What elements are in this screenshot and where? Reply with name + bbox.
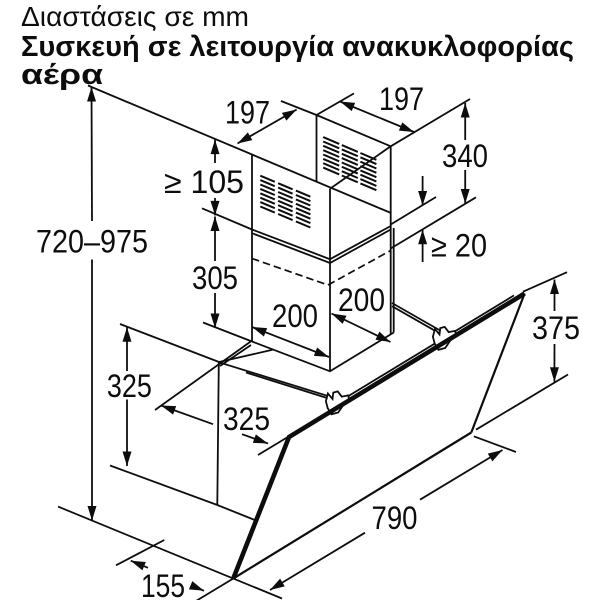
svg-text:197: 197 xyxy=(379,81,424,117)
svg-text:375: 375 xyxy=(532,310,580,346)
svg-text:720–975: 720–975 xyxy=(36,224,148,260)
svg-text:325: 325 xyxy=(107,368,152,404)
svg-text:≥ 105: ≥ 105 xyxy=(164,164,244,200)
svg-text:325: 325 xyxy=(223,401,270,437)
svg-text:Διαστάσεις σε mm: Διαστάσεις σε mm xyxy=(21,1,249,32)
svg-text:200: 200 xyxy=(272,298,318,334)
svg-text:200: 200 xyxy=(338,282,385,318)
svg-text:155: 155 xyxy=(141,568,185,600)
svg-text:790: 790 xyxy=(372,500,418,536)
svg-text:≥ 20: ≥ 20 xyxy=(431,228,487,264)
svg-text:305: 305 xyxy=(192,260,238,296)
svg-text:197: 197 xyxy=(225,95,270,131)
svg-text:Συσκευή σε λειτουργία ανακυκλο: Συσκευή σε λειτουργία ανακυκλοφορίας xyxy=(21,31,574,63)
svg-text:340: 340 xyxy=(442,138,488,174)
